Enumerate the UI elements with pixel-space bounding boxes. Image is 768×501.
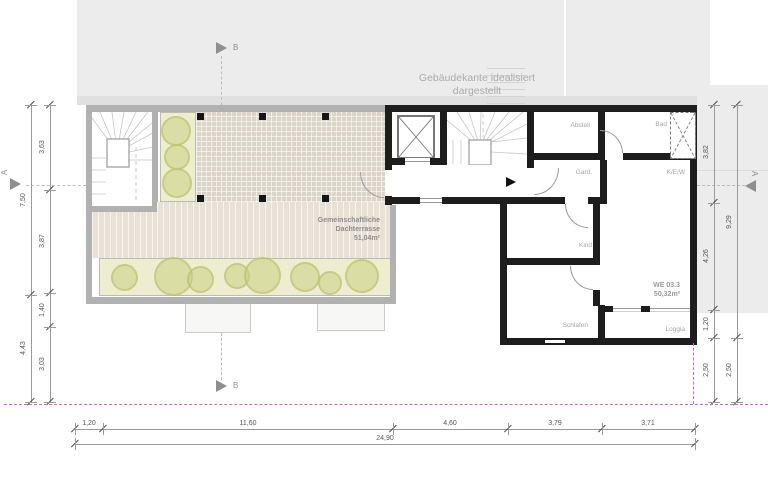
bush	[318, 271, 342, 295]
wall-gard-kew-divider	[600, 160, 607, 204]
section-b-marker-top-icon	[216, 42, 227, 54]
schlafen-window-opening	[545, 340, 565, 343]
corridor-window-line2	[420, 202, 442, 203]
dim-bottom-5: 3,71	[628, 419, 668, 429]
dim-right-3: 1,20	[702, 304, 712, 344]
pergola-post	[322, 195, 329, 202]
dim-left-1: 3,63	[38, 127, 48, 167]
wall-entrance-column	[527, 105, 534, 168]
section-b-label-top: B	[233, 43, 238, 52]
pergola-post	[259, 113, 266, 120]
terrace-stair-wall-right	[152, 105, 158, 212]
apartment-id-label: WE 03.3 50,32m²	[625, 281, 680, 299]
bush	[111, 264, 138, 291]
property-line-vertical	[693, 343, 694, 404]
terrace-pergola-grid	[196, 112, 386, 202]
elevator-door-line	[405, 161, 430, 162]
context-building-right	[697, 85, 768, 313]
wall-kind-living-divider	[593, 197, 600, 258]
dim-left-outer-2: 4,43	[19, 328, 29, 368]
dim-bottom-4: 3,79	[535, 419, 575, 429]
terrace-stair-treads	[92, 112, 158, 206]
pergola-post	[197, 195, 204, 202]
building-edge-note: Gebäudekante idealisiert dargestellt	[377, 72, 577, 98]
elevator-shaft	[396, 114, 436, 160]
dim-line-bottom-total	[75, 444, 695, 445]
room-label-abstell: Abstell	[545, 122, 590, 129]
wall-kind-schlafen-divider	[500, 258, 600, 265]
apt-wall-left-lower	[500, 197, 507, 345]
bush	[161, 116, 191, 146]
bush	[345, 259, 379, 293]
wall-corridor-south	[385, 197, 565, 204]
terrace-label-line1: Gemeinschaftliche	[285, 216, 380, 225]
pergola-post	[322, 113, 329, 120]
terrace-area-value: 51,04m²	[285, 234, 380, 243]
bush	[187, 266, 214, 293]
bush	[290, 262, 320, 292]
dim-bottom-1: 1,20	[69, 419, 109, 429]
section-b-label-bottom: B	[233, 381, 238, 390]
wall-schlafen-living-divider	[593, 290, 600, 306]
dim-line-right-inner	[714, 105, 715, 402]
dim-left-2: 3,87	[38, 221, 48, 261]
terrace-wall-right	[390, 203, 396, 304]
room-label-schlafen: Schlafen	[540, 322, 588, 329]
apt-wall-top	[385, 105, 697, 112]
corridor-window-line1	[420, 198, 442, 199]
wall-elevator-stair-divider	[440, 105, 447, 165]
dim-line-left-inner	[50, 105, 51, 402]
section-b-marker-bottom-icon	[216, 380, 227, 392]
dim-line-left-outer	[31, 105, 32, 402]
section-a-marker-right-icon	[745, 180, 756, 192]
room-label-bad: Bad	[635, 121, 667, 128]
terrace-label-line2: Dachterrasse	[285, 225, 380, 234]
wall-abstell-south	[534, 153, 600, 160]
pergola-post	[259, 195, 266, 202]
apartment-stair-treads	[447, 112, 527, 165]
apartment-id: WE 03.3	[625, 281, 680, 290]
loggia-window-post-mid	[641, 306, 650, 312]
bush	[162, 168, 192, 198]
building-edge-note-line1: Gebäudekante idealisiert	[377, 72, 577, 85]
terrace-door-opening	[385, 170, 392, 196]
apartment-area: 50,32m²	[625, 290, 680, 299]
dim-right-2: 4,26	[702, 236, 712, 276]
dim-right-outer-1: 9,29	[725, 202, 735, 242]
property-line-horizontal	[4, 404, 768, 405]
dim-left-3: 1,40	[38, 290, 48, 330]
room-label-kew: K/E/W	[640, 169, 685, 176]
context-building-top-right	[566, 0, 710, 96]
terrace-wall-top	[86, 105, 386, 112]
pergola-post	[197, 113, 204, 120]
section-b-line-bottom	[221, 333, 222, 380]
bush	[244, 257, 281, 294]
vent-shaft	[670, 112, 696, 159]
entrance-arrow-icon	[506, 177, 516, 187]
balcony-below-right	[317, 302, 385, 331]
room-label-gard: Gard.	[552, 169, 592, 176]
terrace-wall-bottom	[86, 297, 396, 304]
floor-plan-drawing: Gebäudekante idealisiert dargestellt	[0, 0, 768, 501]
section-a-label-right: A	[750, 171, 759, 176]
loggia-window-post-left	[600, 306, 613, 312]
building-edge-note-line2: dargestellt	[377, 85, 577, 98]
dim-bottom-3: 4,60	[430, 419, 470, 429]
dim-right-outer-2: 2,50	[725, 350, 735, 390]
terrace-label: Gemeinschaftliche Dachterrasse 51,04m²	[285, 216, 380, 243]
terrace-deck-left	[92, 212, 157, 258]
dim-bottom-2: 11,60	[228, 419, 268, 429]
dim-line-right-outer	[737, 105, 738, 402]
dim-left-outer-1: 7,50	[19, 180, 29, 220]
dim-right-4: 2,50	[702, 350, 712, 390]
dim-right-1: 3,82	[702, 132, 712, 172]
room-label-kind: Kind	[550, 242, 592, 249]
bush	[164, 144, 190, 170]
section-b-line-top	[221, 56, 222, 105]
section-a-line-left	[26, 185, 86, 186]
room-label-loggia: Loggia	[645, 326, 685, 333]
section-a-label-left: A	[0, 170, 9, 175]
dim-bottom-total: 24,90	[365, 434, 405, 444]
terrace-wall-left	[86, 105, 92, 304]
dim-left-4: 3,03	[38, 344, 48, 384]
balcony-below-left	[185, 302, 251, 333]
